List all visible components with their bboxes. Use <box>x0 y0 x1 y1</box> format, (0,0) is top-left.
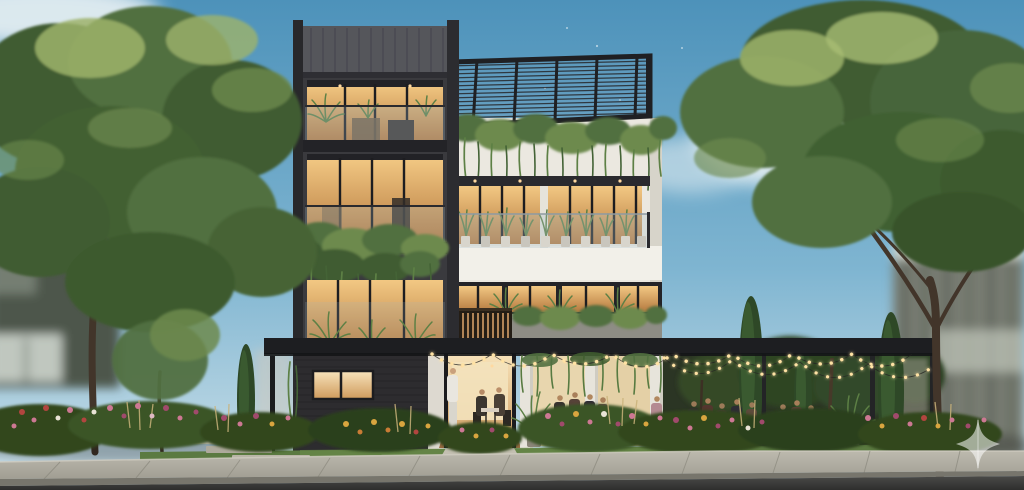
balcony-3f <box>454 176 650 248</box>
render-canvas <box>0 0 1024 490</box>
tower-balcony-4f <box>303 80 447 152</box>
ground-window <box>313 371 373 399</box>
glass-balustrade <box>305 106 445 142</box>
metal-parapet <box>303 26 447 78</box>
facade-fascia <box>450 246 662 280</box>
balcony-2f <box>450 282 667 344</box>
watermark-axis <box>977 420 978 468</box>
